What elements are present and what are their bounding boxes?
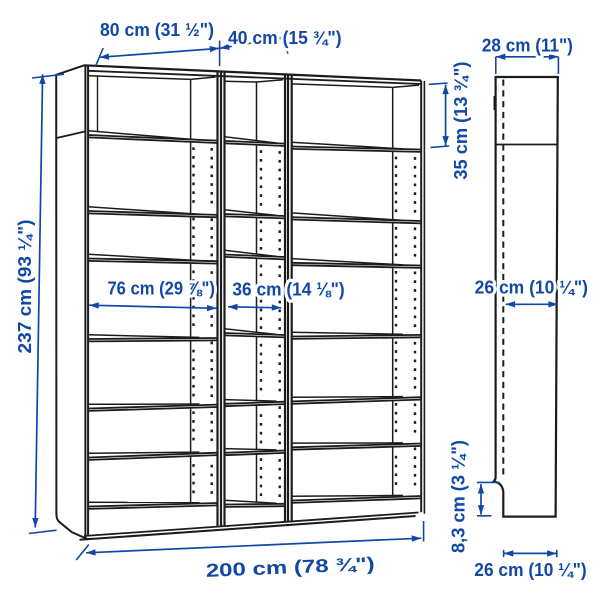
svg-text:40 cm (15 ¾"): 40 cm (15 ¾") — [228, 27, 342, 48]
svg-text:80 cm (31 ½"): 80 cm (31 ½") — [100, 19, 214, 40]
svg-text:237 cm (93 ¼"): 237 cm (93 ¼") — [14, 220, 35, 354]
svg-text:26 cm (10 ¼"): 26 cm (10 ¼") — [475, 277, 588, 298]
svg-text:26 cm (10 ¼"): 26 cm (10 ¼") — [474, 559, 586, 580]
svg-text:76 cm (29 ⅞"): 76 cm (29 ⅞") — [107, 277, 215, 298]
svg-text:36 cm (14 ⅛"): 36 cm (14 ⅛") — [232, 279, 344, 300]
svg-text:8,3 cm (3 ¼"): 8,3 cm (3 ¼") — [448, 440, 469, 553]
svg-text:28 cm (11"): 28 cm (11") — [482, 34, 573, 55]
svg-text:35 cm (13 ¾"): 35 cm (13 ¾") — [450, 62, 471, 180]
